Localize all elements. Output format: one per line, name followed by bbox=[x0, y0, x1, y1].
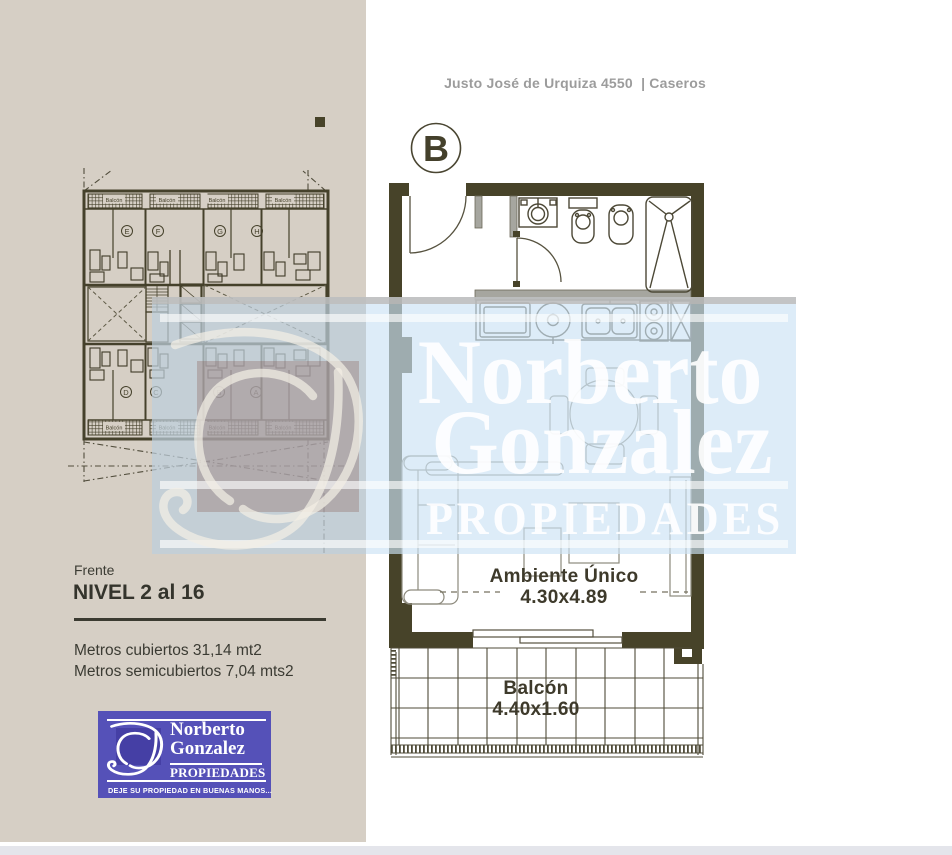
svg-text:D: D bbox=[123, 388, 129, 397]
svg-text:B: B bbox=[423, 128, 449, 169]
svg-text:H: H bbox=[254, 227, 259, 236]
svg-text:Balcón: Balcón bbox=[106, 426, 123, 432]
svg-text:E: E bbox=[124, 227, 129, 236]
svg-text:Balcón: Balcón bbox=[106, 198, 123, 204]
svg-text:G: G bbox=[217, 227, 223, 236]
svg-text:F: F bbox=[156, 227, 161, 236]
svg-text:Balcón: Balcón bbox=[275, 198, 292, 204]
svg-text:Balcón: Balcón bbox=[209, 198, 226, 204]
svg-text:Balcón: Balcón bbox=[159, 198, 176, 204]
